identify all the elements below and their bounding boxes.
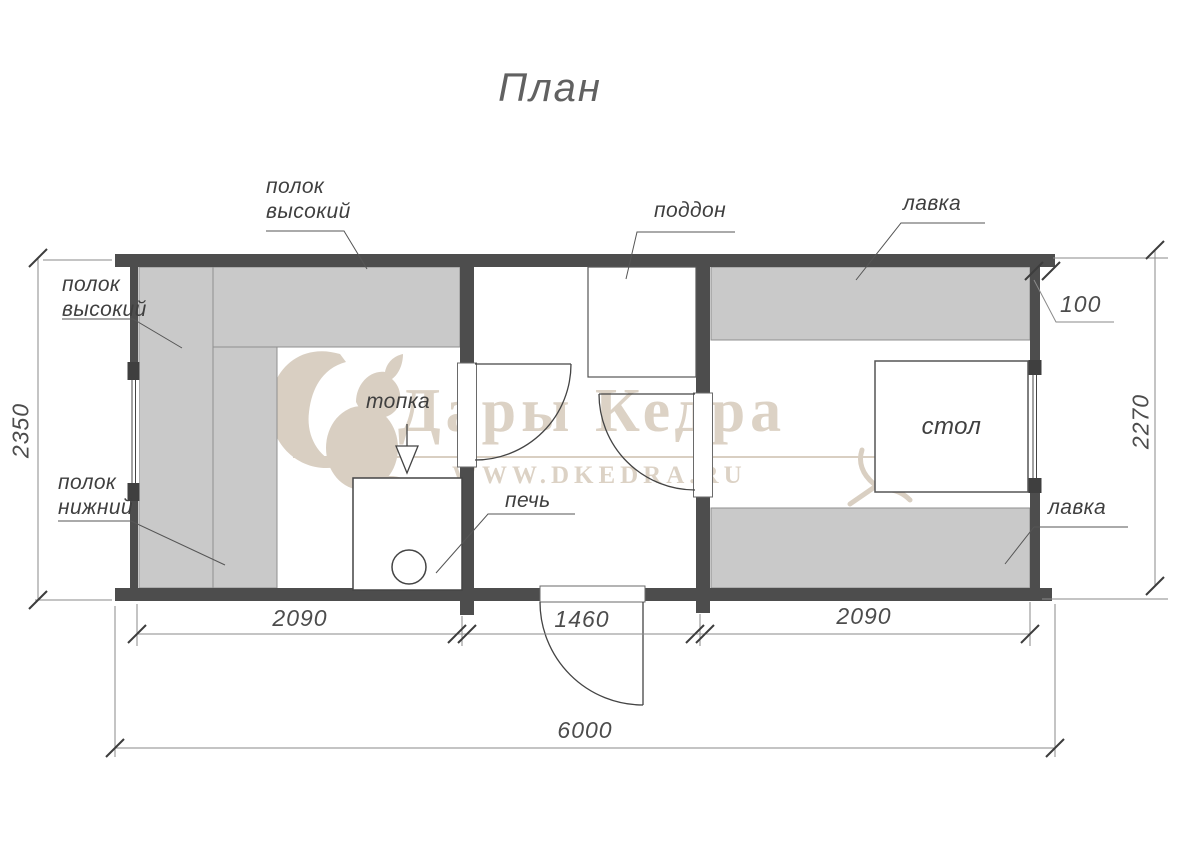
table — [875, 361, 1028, 492]
stove — [353, 478, 462, 590]
window-left — [128, 362, 140, 501]
firebox-arrow-icon — [396, 424, 418, 473]
shower-tray — [588, 267, 696, 377]
window-right — [1029, 360, 1042, 493]
door-swings — [475, 364, 695, 705]
door-openings — [458, 363, 713, 602]
plan-drawing — [0, 0, 1200, 848]
floor-plan: Дары Кедра WWW.DKEDRA.RU — [0, 0, 1200, 848]
